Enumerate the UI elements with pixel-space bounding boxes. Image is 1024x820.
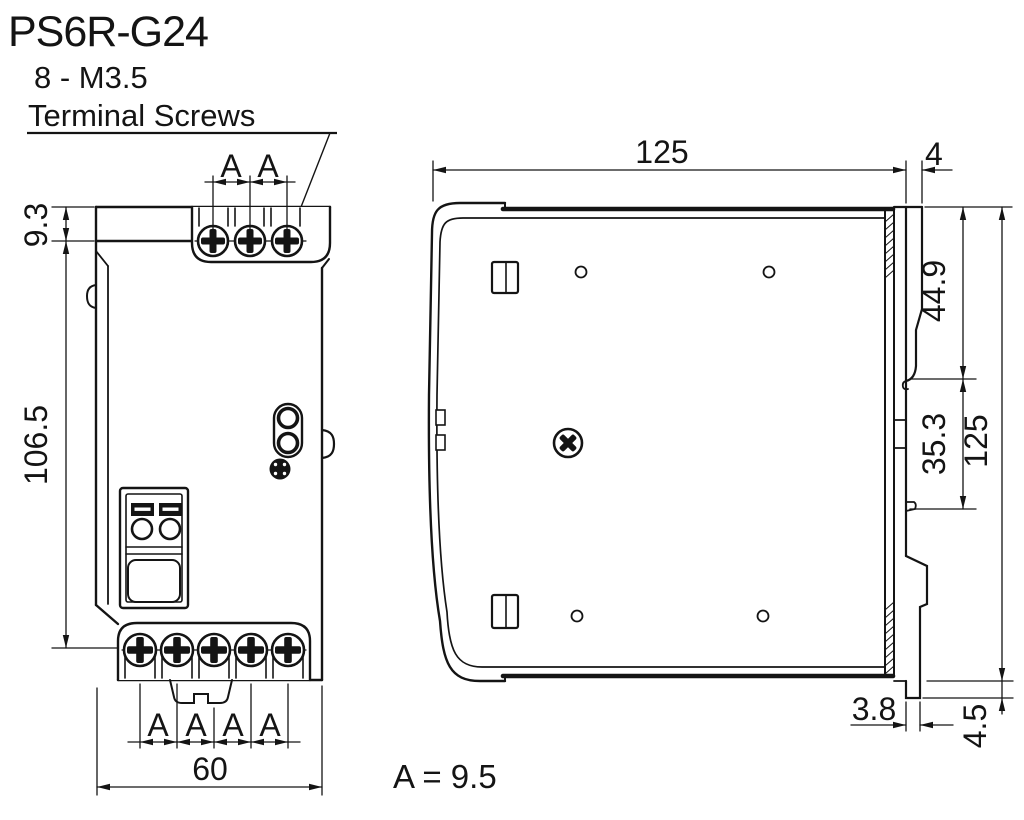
dim-clip-upper: 44.9 — [916, 260, 952, 322]
led-icon — [279, 434, 298, 453]
dim-pitch-label-bottom: A — [222, 707, 244, 743]
front-bottom-left-chamfer — [96, 605, 118, 624]
screw-spec-label: 8 - M3.5 — [34, 60, 148, 95]
dim-foot-depth: 3.8 — [852, 691, 896, 727]
technical-drawing-page: PS6R-G24 8 - M3.5 Terminal Screws — [0, 0, 1024, 820]
rear-mounting-plate — [885, 209, 894, 676]
dimension-drawing: PS6R-G24 8 - M3.5 Terminal Screws — [0, 0, 1024, 820]
led-icon — [279, 409, 298, 428]
side-view: 125 4 44.9 35.3 125 4.5 3.8 — [429, 134, 1013, 748]
dim-overall-depth: 125 — [635, 134, 688, 170]
terminal-screw-icon — [198, 634, 230, 666]
dim-top-screw-offset: 9.3 — [18, 203, 54, 247]
dim-pitch-label-bottom: A — [185, 707, 207, 743]
adjust-potentiometer — [270, 459, 291, 480]
side-front-inner-edge — [437, 218, 885, 667]
terminal-screw-icon — [161, 634, 193, 666]
dim-pitch-label-top: A — [257, 148, 279, 184]
dim-foot-height: 4.5 — [957, 704, 993, 748]
case-screw-icon — [554, 429, 582, 457]
side-panel-features — [492, 262, 775, 628]
terminal-screw-icon — [272, 634, 304, 666]
dim-overall-height: 125 — [958, 414, 994, 467]
vent-slot — [492, 595, 518, 628]
dim-clip-lower: 35.3 — [916, 413, 952, 475]
front-view: 9.3 106.5 A A A A A A 60 — [18, 148, 334, 795]
panel-hole — [764, 267, 775, 278]
din-release-tab — [170, 680, 232, 703]
dim-pitch-label-bottom: A — [259, 707, 281, 743]
dim-din-clip-depth: 4 — [925, 136, 943, 172]
left-edge-tab — [87, 285, 96, 308]
pitch-note: A = 9.5 — [393, 758, 497, 795]
panel-hole — [758, 611, 769, 622]
terminal-screw-icon — [124, 634, 156, 666]
front-edge-notch — [436, 410, 445, 425]
dim-body-height: 106.5 — [18, 405, 54, 485]
vent-slot — [492, 262, 518, 293]
terminal-screws-label: Terminal Screws — [28, 98, 255, 133]
dim-pitch-label-bottom: A — [147, 707, 169, 743]
page-title: PS6R-G24 — [8, 8, 208, 56]
right-edge-tab — [322, 430, 334, 458]
front-edge-notch — [436, 435, 445, 450]
bottom-terminal-block — [118, 623, 310, 703]
led-indicators — [274, 404, 302, 457]
panel-hole — [576, 267, 587, 278]
din-clip-foot — [906, 681, 920, 698]
dim-pitch-label-top: A — [220, 148, 242, 184]
panel-hole — [572, 611, 583, 622]
front-dimension-arrows — [63, 179, 322, 790]
dim-overall-width: 60 — [192, 751, 228, 787]
front-connector-block — [120, 488, 188, 608]
terminal-screw-icon — [235, 634, 267, 666]
